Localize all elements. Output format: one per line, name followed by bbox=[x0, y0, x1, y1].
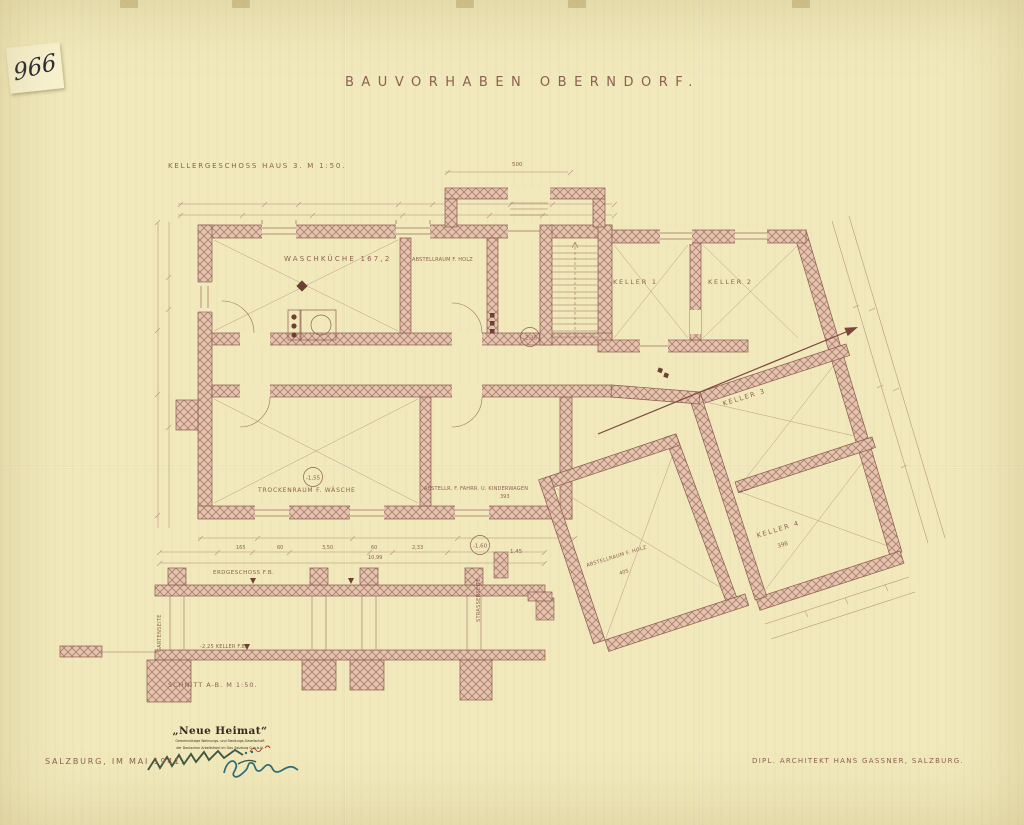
stamp-line1: „Neue Heimat“ bbox=[160, 725, 280, 737]
stamp-line2: Gemeinnützige Wohnungs- und Siedlungs-Ge… bbox=[160, 739, 280, 743]
wash-kettle bbox=[288, 280, 336, 340]
section-side-strasse: STRASSENSEITE bbox=[477, 578, 483, 622]
archive-number-label: 966 bbox=[6, 42, 65, 93]
room-label-abstellraum-holz: ABSTELLRAUM F. HOLZ bbox=[412, 258, 473, 264]
neue-heimat-stamp: „Neue Heimat“ Gemeinnützige Wohnungs- un… bbox=[160, 725, 280, 737]
section-dim: 60 bbox=[371, 546, 377, 552]
archive-number: 966 bbox=[12, 49, 58, 86]
section-title: SCHNITT A-B. M 1:50. bbox=[168, 682, 258, 689]
room-label-trockenraum: TROCKENRAUM F. WÄSCHE bbox=[258, 488, 356, 495]
angled-wing-walls bbox=[539, 230, 904, 651]
stamp-line3: der Deutschen Arbeitsfront im Gau Salzbu… bbox=[160, 746, 280, 750]
dim-street: 1,45 bbox=[510, 549, 522, 555]
section-dim: 2,33 bbox=[412, 546, 423, 552]
plan-title: KELLERGESCHOSS HAUS 3. M 1:50. bbox=[168, 163, 346, 171]
room-label-waschkueche: WASCHKÜCHE 167,2 bbox=[284, 256, 392, 264]
dim-abstellr-fahrr: 393 bbox=[500, 495, 510, 501]
section-side-garten: GARTENSEITE bbox=[158, 614, 164, 652]
section-dim-total: 10,99 bbox=[368, 556, 382, 562]
level-marker-stair: -2,35 bbox=[523, 336, 538, 342]
page-title: BAUVORHABEN OBERNDORF. bbox=[345, 76, 700, 90]
date-line: SALZBURG, IM MAI 1941. bbox=[45, 758, 185, 767]
room-label-keller2: KELLER 2 bbox=[708, 279, 753, 286]
section-floor-upper: ERDGESCHOSS F.B. bbox=[213, 570, 274, 576]
section-dim: 165 bbox=[236, 546, 246, 552]
blueprint-sheet: -2,35 -1,55 -1,60 bbox=[0, 0, 1024, 825]
level-marker-trockenraum: -1,55 bbox=[306, 476, 321, 482]
dim-top-total: 500 bbox=[512, 162, 523, 168]
architect-line: DIPL. ARCHITEKT HANS GASSNER, SALZBURG. bbox=[752, 758, 964, 766]
section-drawing bbox=[60, 550, 552, 702]
room-label-abstellr-fahrr: ABSTELLR. F. FAHRR. U. KINDERWAGEN bbox=[424, 487, 528, 493]
section-floor-lower: -2,25 KELLER F.B. bbox=[200, 645, 247, 651]
room-label-keller1: KELLER 1 bbox=[613, 279, 658, 286]
section-dim: 3,50 bbox=[322, 546, 333, 552]
stairs bbox=[552, 242, 598, 343]
signature-teal bbox=[224, 751, 298, 777]
floor-plan-drawing: -2,35 -1,55 -1,60 bbox=[0, 0, 1024, 825]
interior-walls bbox=[212, 225, 612, 506]
level-marker-street: -1,60 bbox=[473, 544, 488, 550]
angled-wing-openings bbox=[640, 229, 767, 353]
section-dim: 60 bbox=[277, 546, 283, 552]
